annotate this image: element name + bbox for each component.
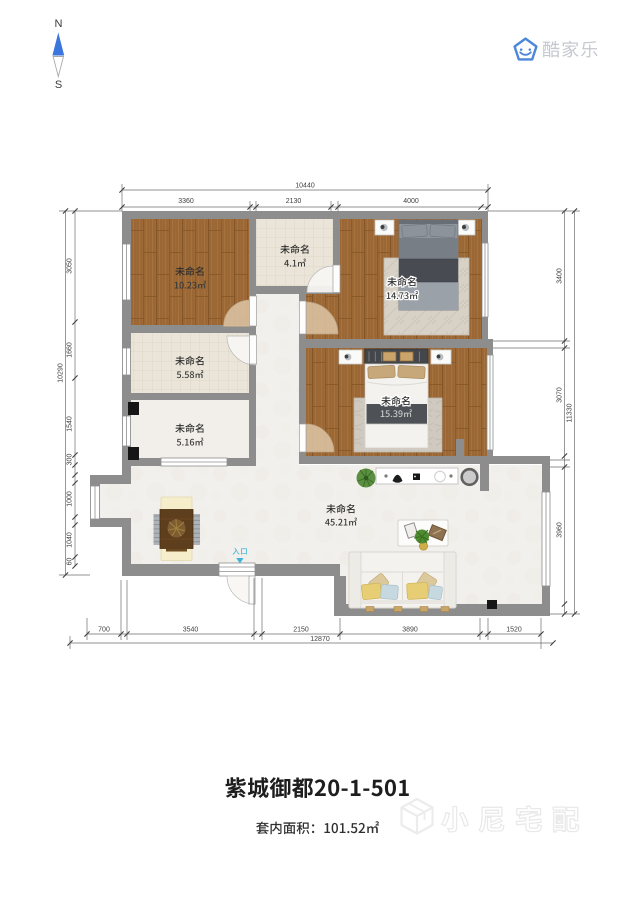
svg-text:60: 60 [67, 558, 74, 566]
svg-text:1000: 1000 [67, 491, 74, 507]
svg-text:1520: 1520 [506, 627, 522, 634]
svg-text:3540: 3540 [183, 627, 199, 634]
svg-text:1660: 1660 [67, 342, 74, 358]
svg-text:3070: 3070 [557, 387, 564, 403]
svg-text:2130: 2130 [286, 198, 302, 205]
svg-text:300: 300 [67, 454, 74, 466]
svg-text:N: N [55, 18, 63, 30]
svg-text:3890: 3890 [402, 627, 418, 634]
svg-text:10440: 10440 [295, 183, 315, 190]
svg-text:3050: 3050 [67, 258, 74, 274]
svg-text:3960: 3960 [557, 522, 564, 538]
svg-text:4000: 4000 [403, 198, 419, 205]
svg-text:1540: 1540 [67, 416, 74, 432]
svg-text:3400: 3400 [557, 268, 564, 284]
svg-text:10290: 10290 [58, 363, 65, 383]
svg-text:S: S [55, 79, 62, 91]
svg-text:1040: 1040 [67, 532, 74, 548]
svg-text:12870: 12870 [310, 636, 330, 643]
svg-text:11330: 11330 [567, 403, 574, 422]
svg-text:700: 700 [98, 627, 110, 634]
svg-text:3360: 3360 [178, 198, 194, 205]
svg-text:2150: 2150 [293, 627, 309, 634]
